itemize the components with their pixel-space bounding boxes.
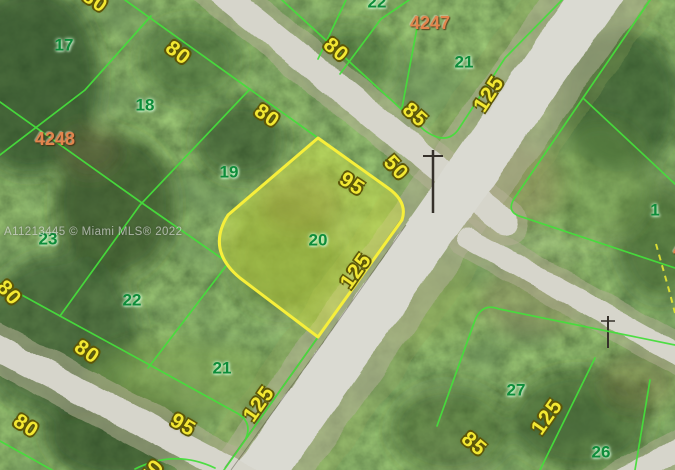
dimension-label: 95 bbox=[167, 410, 199, 441]
lot-number-label: 26 bbox=[592, 444, 611, 461]
lot-number-label: 1 bbox=[650, 202, 659, 219]
dimension-label: 80 bbox=[320, 34, 353, 66]
lot-number-label: 27 bbox=[507, 382, 526, 399]
aerial-parcel-map: 8080808085125509512580808095125501258517… bbox=[0, 0, 675, 470]
dimension-label: 85 bbox=[458, 428, 491, 460]
dimension-label: 80 bbox=[71, 336, 104, 368]
dimension-label: 80 bbox=[0, 277, 25, 310]
dimension-label: 80 bbox=[10, 410, 43, 441]
lot-number-label: 21 bbox=[213, 360, 232, 377]
dimension-label: 50 bbox=[380, 152, 413, 185]
dimension-label: 80 bbox=[79, 0, 112, 17]
dimension-label: 50 bbox=[136, 456, 168, 470]
mls-watermark: A11213445 © Miami MLS® 2022 bbox=[4, 226, 182, 238]
lot-number-label: 22 bbox=[368, 0, 387, 11]
lot-number-label: 21 bbox=[455, 54, 474, 71]
dimension-label: 125 bbox=[470, 72, 508, 115]
lot-number-label: 18 bbox=[136, 97, 155, 114]
block-number-label: 4248 bbox=[35, 130, 75, 148]
dimension-label: 95 bbox=[336, 168, 369, 199]
lot-number-label: 20 bbox=[309, 232, 328, 249]
dimension-label: 80 bbox=[162, 37, 195, 69]
dimension-label: 125 bbox=[336, 249, 375, 292]
dimension-label: 80 bbox=[251, 100, 284, 132]
dimension-label: 125 bbox=[239, 382, 278, 425]
lot-number-label: 19 bbox=[220, 164, 239, 181]
lot-number-label: 17 bbox=[55, 37, 74, 54]
dimension-label: 125 bbox=[527, 395, 566, 438]
dimension-label: 85 bbox=[399, 99, 432, 132]
lot-number-label: 22 bbox=[123, 292, 142, 309]
block-number-label: 4247 bbox=[410, 14, 450, 32]
